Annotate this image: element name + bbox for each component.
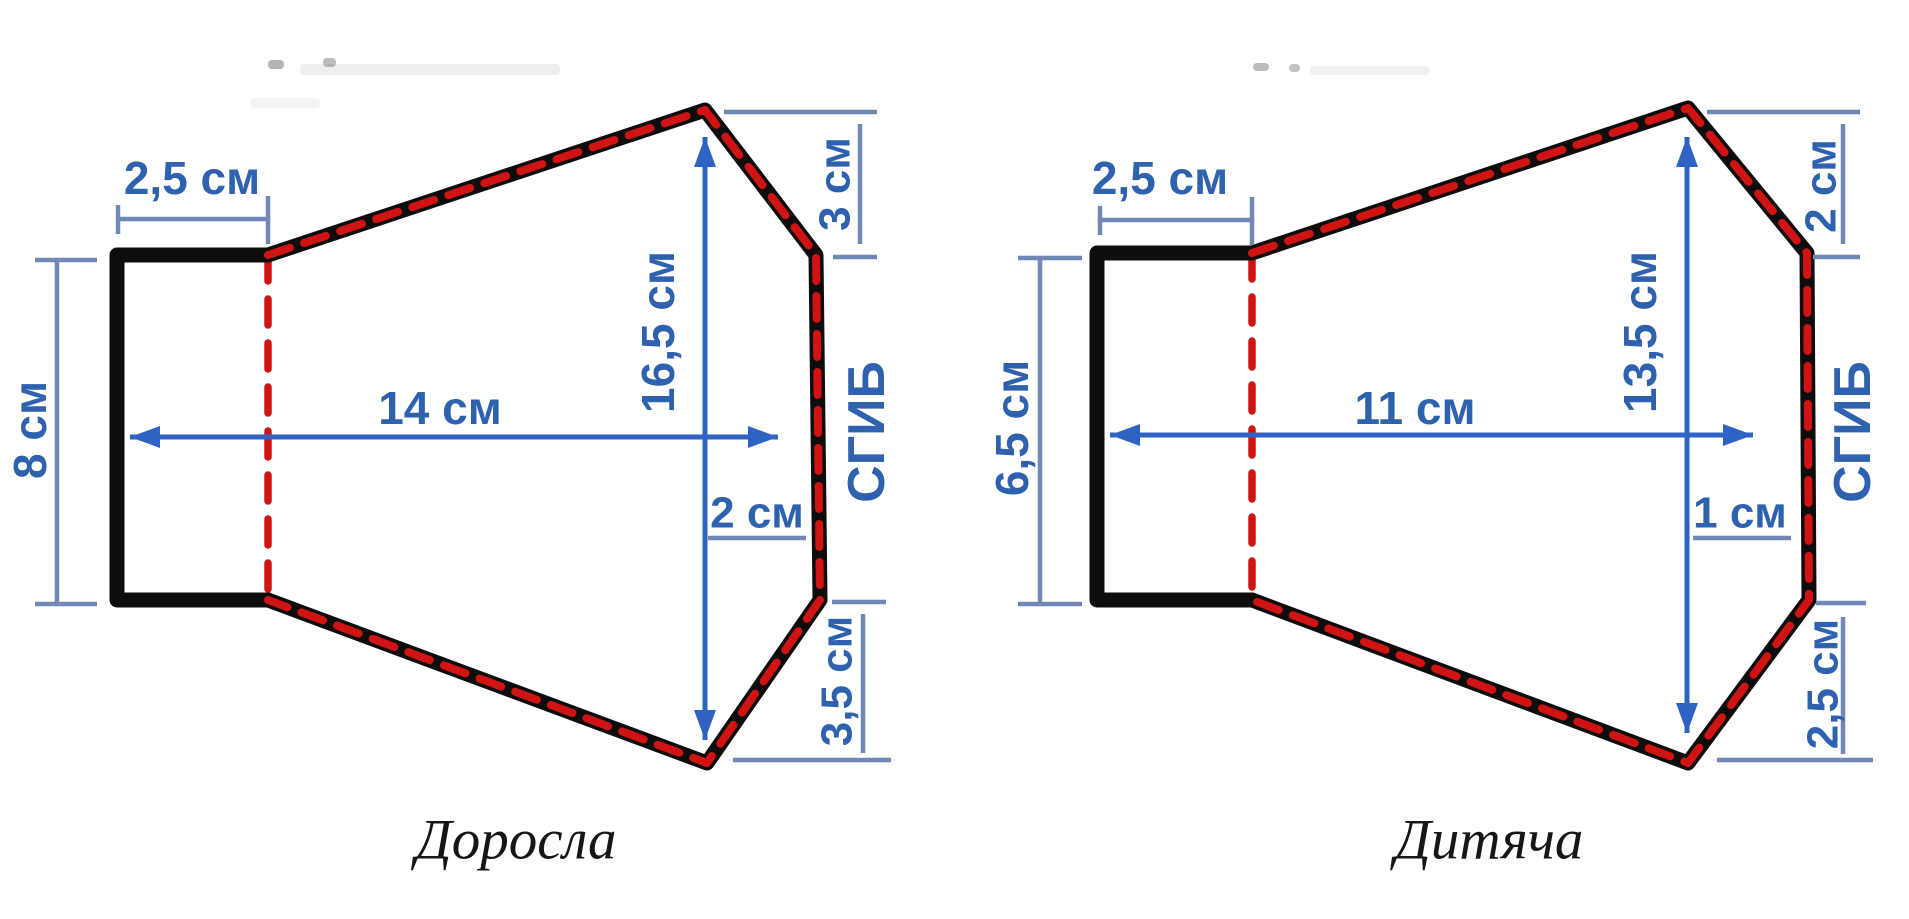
dimension-label: 3 см xyxy=(810,137,859,231)
diagram-adult: 2,5 см8 см14 см16,5 см3 см2 см3,5 смСГИБ xyxy=(4,110,896,763)
scan-artifact xyxy=(1289,64,1300,72)
fold-label: СГИБ xyxy=(1824,361,1882,503)
dimension-label: 2,5 см xyxy=(124,152,260,204)
dimension-label: 1 см xyxy=(1693,488,1787,537)
dimension-label: 11 см xyxy=(1354,382,1475,434)
caption-child: Дитяча xyxy=(1395,808,1584,873)
fold-label: СГИБ xyxy=(838,361,896,503)
dimension-label: 16,5 см xyxy=(632,251,684,413)
arrowhead xyxy=(1723,424,1753,446)
scan-artifact xyxy=(1310,66,1430,75)
arrowhead xyxy=(1676,703,1698,733)
mask-pattern-image: 2,5 см8 см14 см16,5 см3 см2 см3,5 смСГИБ… xyxy=(0,0,1909,919)
scan-artifact xyxy=(300,64,560,75)
dimension-label: 2 см xyxy=(710,488,804,537)
scan-artifact xyxy=(268,60,284,69)
arrowhead xyxy=(694,137,716,167)
dimension-label: 3,5 см xyxy=(812,616,861,746)
dimension-label: 2,5 см xyxy=(1092,152,1228,204)
dimension-label: 2 см xyxy=(1796,139,1845,233)
dimension-label: 13,5 см xyxy=(1614,251,1666,413)
cut-outline xyxy=(117,255,268,600)
arrowhead xyxy=(1676,137,1698,167)
arrowhead xyxy=(694,710,716,740)
caption-adult: Доросла xyxy=(415,808,616,873)
arrowhead xyxy=(748,426,778,448)
dimension-label: 6,5 см xyxy=(986,360,1038,496)
dimension-label: 14 см xyxy=(378,382,502,434)
dimension-label: 8 см xyxy=(4,381,56,479)
cut-outline xyxy=(1097,253,1252,600)
scan-artifact xyxy=(250,98,320,108)
diagram-child: 2,5 см6,5 см11 см13,5 см2 см1 см2,5 смСГ… xyxy=(986,108,1882,763)
scan-artifact xyxy=(1253,63,1269,71)
diagram-canvas: 2,5 см8 см14 см16,5 см3 см2 см3,5 смСГИБ… xyxy=(0,0,1909,919)
dimension-label: 2,5 см xyxy=(1798,619,1847,749)
arrowhead xyxy=(130,426,160,448)
arrowhead xyxy=(1110,424,1140,446)
